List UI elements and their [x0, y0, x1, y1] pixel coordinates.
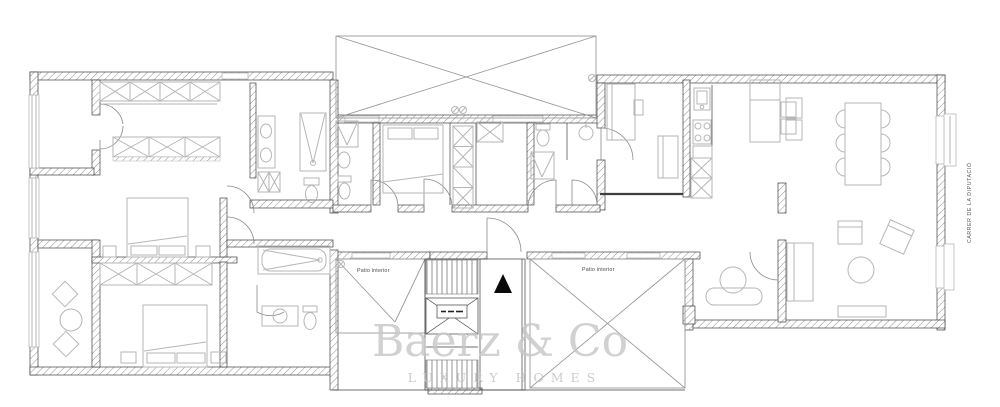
wardrobe-column [453, 126, 473, 208]
wardrobe-icon [100, 263, 212, 285]
shower-icon [300, 113, 326, 171]
dining-area [836, 103, 890, 185]
window-right-1 [936, 114, 956, 166]
bath-door-4 [572, 180, 597, 205]
bathtub-icon [258, 246, 330, 274]
double-door-left-a [100, 104, 123, 124]
dining-table-icon [845, 103, 881, 185]
chair-icon [52, 281, 77, 306]
nightstand-icon [121, 352, 136, 363]
window-top-left [222, 73, 248, 79]
console-icon [838, 306, 886, 317]
round-chair-icon [720, 267, 746, 293]
toilet-icon [304, 178, 319, 203]
top-lightwell [336, 36, 596, 118]
sofa-icon [787, 243, 813, 301]
sink-icon [579, 126, 593, 140]
window-patio-right-2 [627, 253, 660, 258]
bedroom-3 [383, 125, 443, 193]
chaise-icon [706, 288, 762, 305]
living-door [750, 252, 778, 280]
hall-door-1 [227, 186, 254, 213]
sink-icon [338, 152, 350, 168]
shower-icon [336, 121, 358, 147]
dressing-room [100, 82, 220, 161]
chair-icon [53, 331, 78, 356]
bedroom-2 [100, 263, 226, 367]
window-left-2 [29, 178, 39, 238]
bathroom-lower [258, 246, 330, 330]
bench-icon [658, 136, 678, 178]
watermark-title: Baerz & Co [372, 316, 628, 367]
hall-door-3 [601, 128, 633, 160]
kitchen [691, 80, 802, 198]
watermark-subtitle: LUXURY HOMES [408, 370, 602, 385]
patio-left-label: Patio interior [357, 268, 390, 274]
round-table-icon [60, 309, 82, 331]
floor-plan-drawing: Patio interior Patio interior [0, 0, 1000, 407]
wardrobe-icon [113, 137, 220, 161]
fridge-cabinets-icon [750, 80, 802, 142]
armchair-icon [838, 221, 862, 244]
street-name-label: CARRER DE LA DIPUTACIÓ [966, 162, 973, 243]
bathroom-left [258, 113, 326, 203]
bathroom-mid-left [336, 121, 358, 199]
bath-door-1 [257, 285, 284, 316]
bathroom-mid-right [531, 124, 593, 179]
round-table-icon [848, 257, 874, 283]
toilet-icon [303, 306, 317, 330]
window-right-2 [936, 244, 954, 290]
stairs-icon [426, 260, 478, 294]
bed-icon [383, 125, 443, 193]
counter-icon [607, 84, 635, 140]
cabinet-icon [781, 102, 796, 117]
window-patio-left [352, 253, 390, 258]
utility-room [607, 84, 678, 178]
nightstand-icon [103, 246, 116, 257]
window-left-1 [29, 95, 39, 168]
sitting-nook [52, 281, 82, 356]
toilet-icon [338, 176, 351, 199]
cabinet-icon [691, 158, 712, 198]
window-left-3 [29, 252, 39, 347]
patio-right-label: Patio interior [582, 267, 615, 273]
cabinet-icon [781, 119, 796, 134]
window-mid-2 [493, 116, 543, 122]
armchair-icon [880, 220, 914, 254]
entry-door [487, 218, 521, 252]
closet-room [477, 122, 503, 142]
watermark: Baerz & Co LUXURY HOMES [372, 316, 628, 385]
bedroom-1 [103, 198, 210, 257]
bed-icon [143, 305, 207, 367]
window-patio-right-1 [552, 253, 585, 258]
bed-icon [127, 198, 188, 257]
double-sink-icon [258, 116, 275, 168]
washer-icon [258, 172, 280, 192]
nightstand-icon [196, 246, 210, 257]
entrance-arrow-icon [494, 274, 512, 293]
stove-icon [693, 120, 711, 144]
floor-plan-page: Patio interior Patio interior [0, 0, 1000, 407]
vent-pipes-icon [452, 75, 596, 114]
wardrobe-icon [100, 82, 220, 104]
sink-icon [262, 306, 298, 326]
shower-icon [531, 152, 554, 179]
toilet-icon [536, 124, 550, 146]
kitchen-sink-icon [694, 88, 710, 110]
counter-icon [693, 146, 712, 158]
dining-chairs-icon [836, 110, 890, 176]
